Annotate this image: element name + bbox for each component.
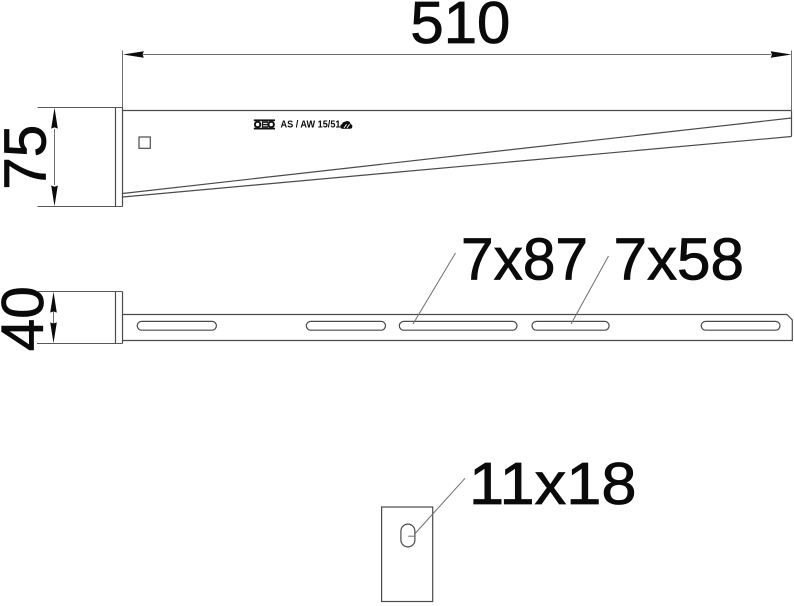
svg-text:AS / AW 15/51: AS / AW 15/51 — [281, 120, 341, 131]
svg-text:40: 40 — [0, 286, 56, 351]
svg-text:7x58: 7x58 — [614, 227, 745, 293]
svg-text:75: 75 — [0, 125, 59, 190]
svg-text:510: 510 — [410, 0, 510, 56]
svg-text:7x87: 7x87 — [461, 227, 588, 293]
svg-text:11x18: 11x18 — [469, 451, 637, 517]
